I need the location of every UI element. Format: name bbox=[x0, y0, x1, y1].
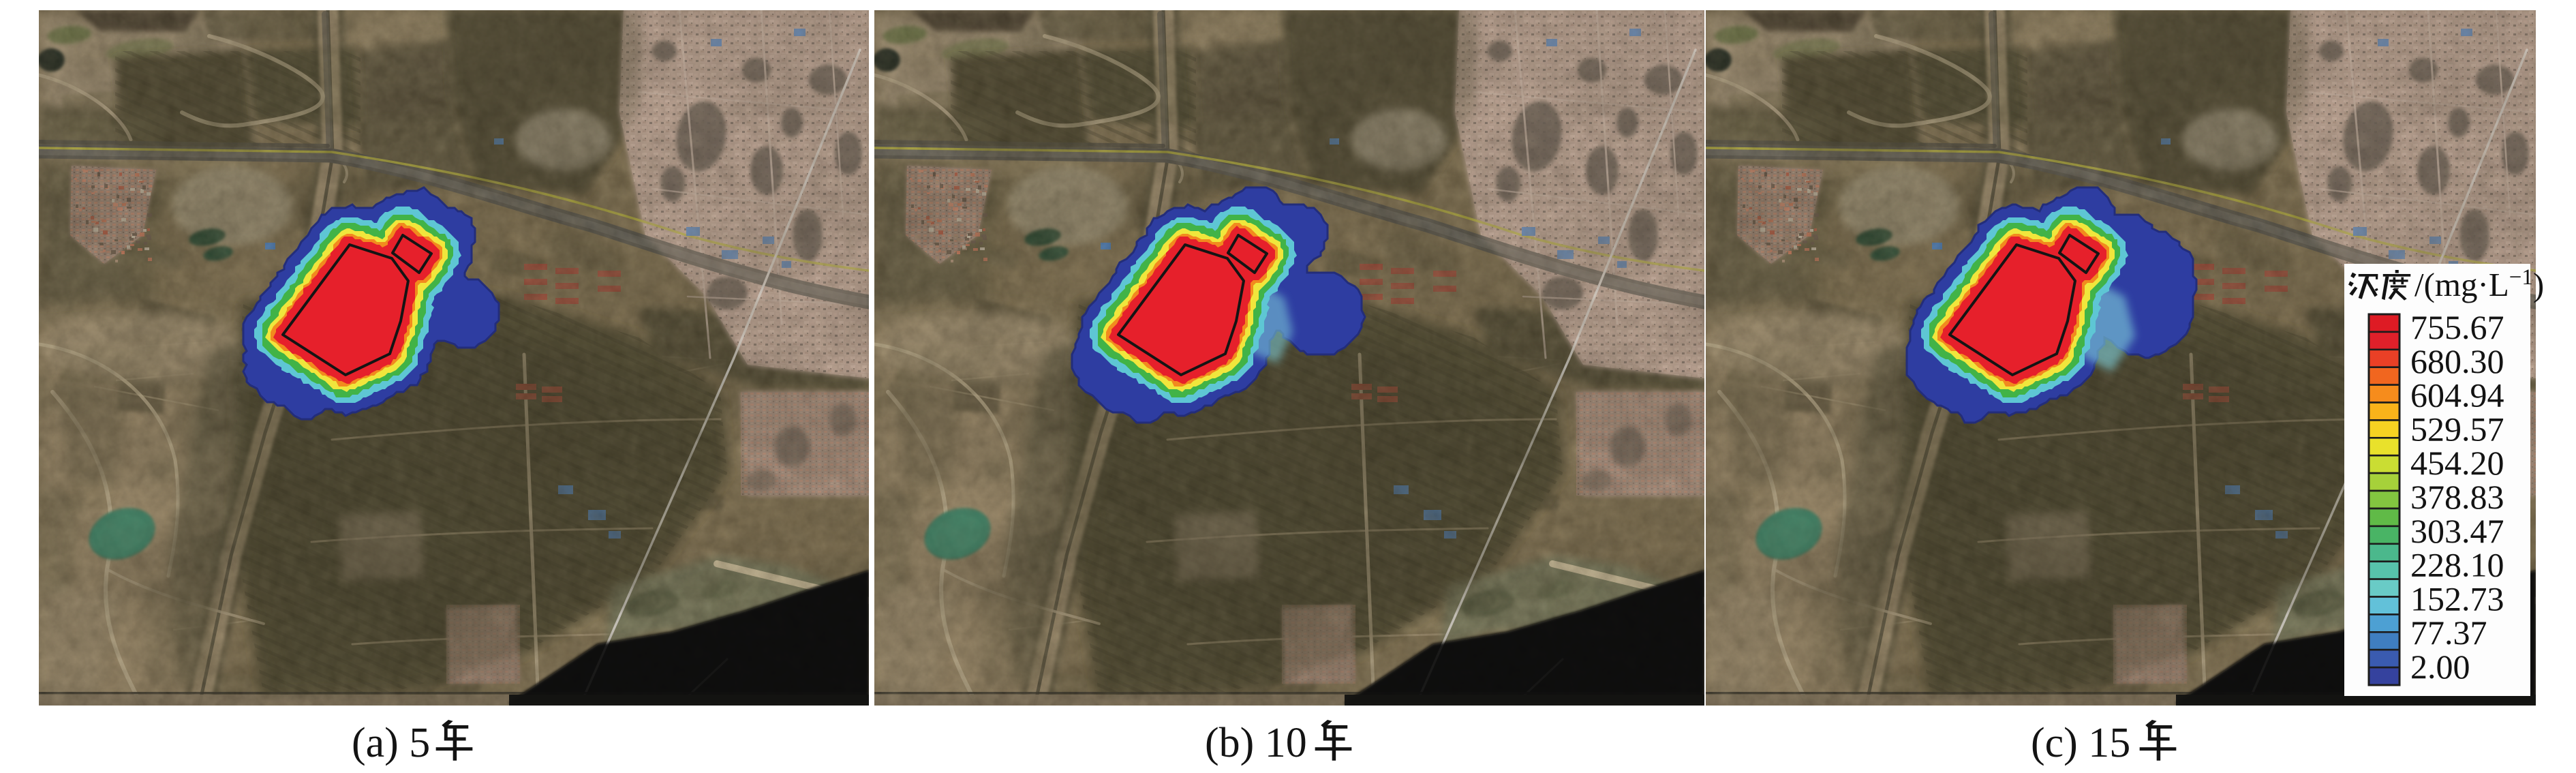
svg-text:2.00: 2.00 bbox=[2410, 648, 2470, 686]
svg-text:(c) 15: (c) 15 bbox=[2031, 720, 2130, 766]
svg-text:378.83: 378.83 bbox=[2410, 478, 2504, 516]
svg-text:(a) 5: (a) 5 bbox=[352, 720, 430, 766]
svg-text:152.73: 152.73 bbox=[2410, 579, 2504, 618]
svg-text:604.94: 604.94 bbox=[2410, 376, 2504, 414]
svg-text:(b) 10: (b) 10 bbox=[1205, 720, 1307, 766]
svg-text:454.20: 454.20 bbox=[2410, 444, 2504, 482]
svg-text:77.37: 77.37 bbox=[2410, 613, 2487, 652]
svg-text:755.67: 755.67 bbox=[2410, 308, 2504, 346]
svg-text:680.30: 680.30 bbox=[2410, 342, 2504, 380]
svg-text:529.57: 529.57 bbox=[2410, 410, 2504, 448]
svg-text:303.47: 303.47 bbox=[2410, 512, 2504, 550]
svg-text:228.10: 228.10 bbox=[2410, 546, 2504, 584]
